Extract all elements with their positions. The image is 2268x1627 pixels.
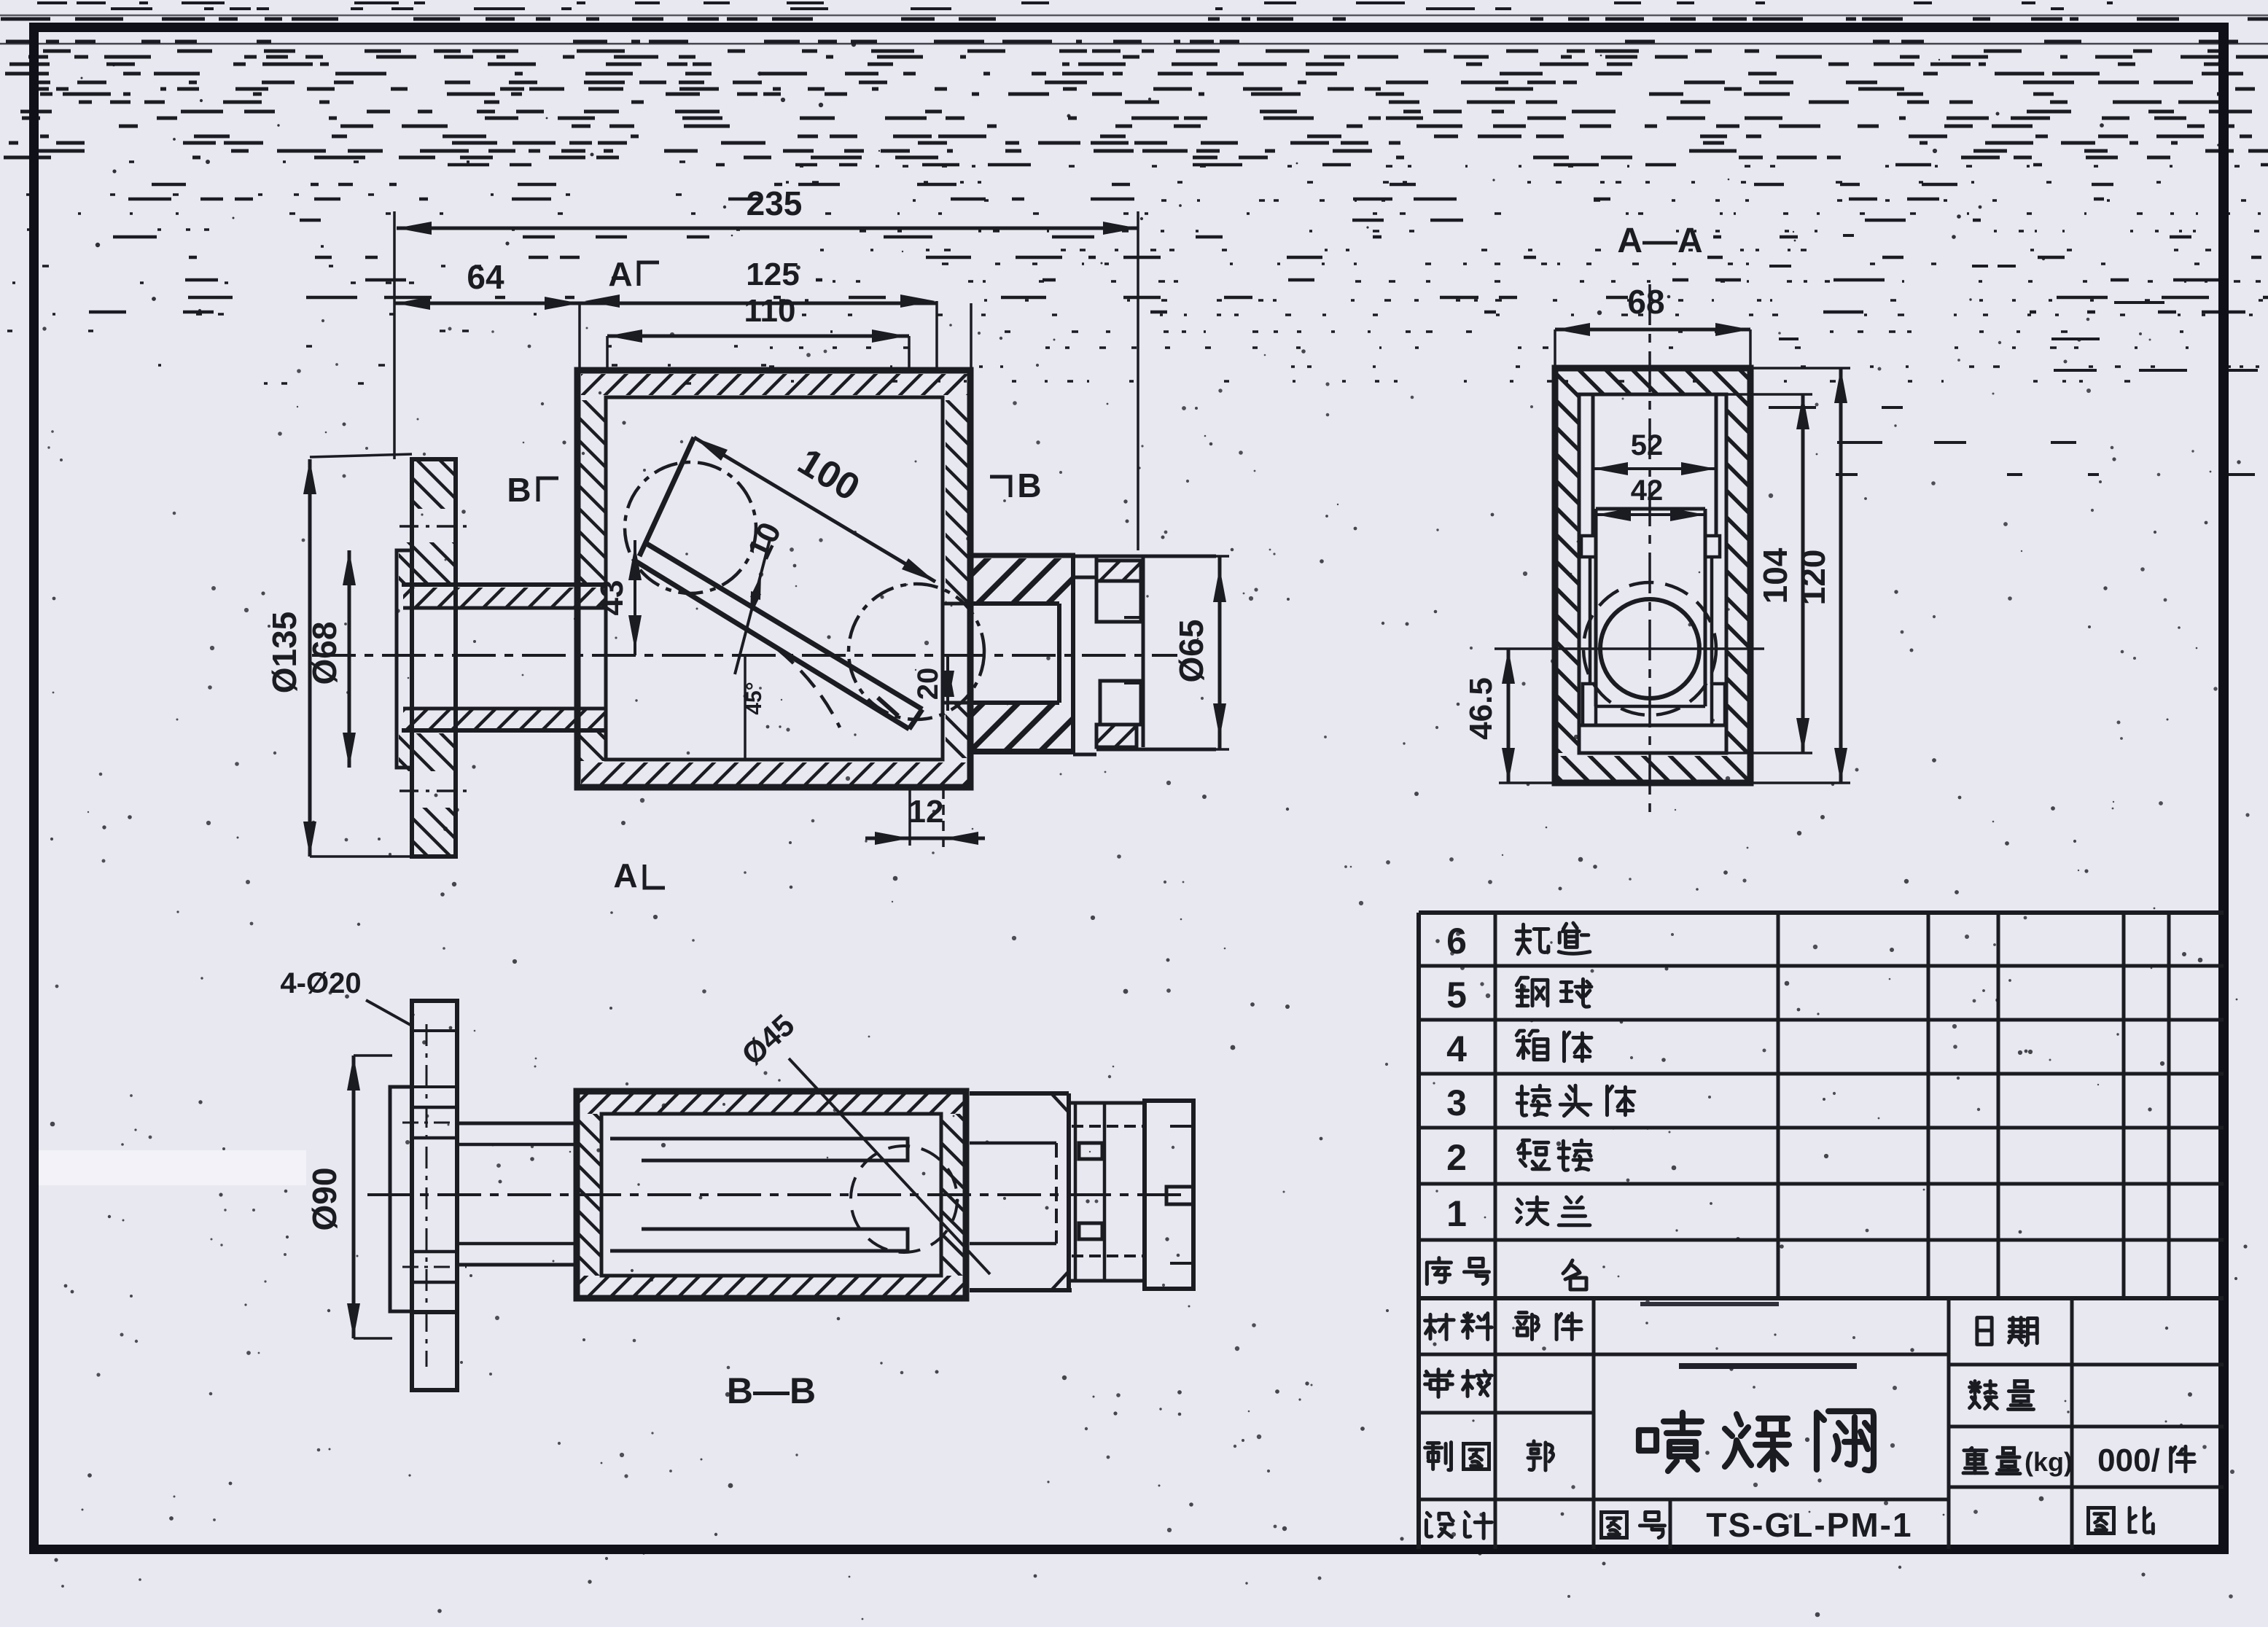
svg-text:110: 110 [744, 293, 796, 329]
svg-text:104: 104 [1756, 547, 1794, 604]
svg-text:A—A: A—A [1617, 222, 1702, 260]
svg-text:235: 235 [747, 184, 803, 222]
svg-text:100: 100 [791, 440, 867, 509]
svg-text:1: 1 [1446, 1193, 1467, 1234]
svg-text:6: 6 [1446, 921, 1467, 961]
svg-text:Ø90: Ø90 [305, 1168, 343, 1231]
svg-text:2: 2 [1446, 1137, 1467, 1178]
svg-text:12: 12 [908, 794, 944, 830]
svg-text:64: 64 [467, 258, 504, 296]
svg-text:4: 4 [1446, 1029, 1467, 1069]
svg-text:B: B [507, 471, 531, 509]
svg-text:4-Ø20: 4-Ø20 [280, 967, 361, 999]
svg-text:3: 3 [1446, 1082, 1467, 1123]
svg-text:A: A [613, 857, 637, 894]
svg-text:52: 52 [1631, 429, 1664, 461]
svg-text:TS-GL-PM-1: TS-GL-PM-1 [1706, 1506, 1912, 1544]
svg-text:43: 43 [594, 580, 630, 616]
svg-text:Ø135: Ø135 [265, 612, 303, 694]
svg-text:5: 5 [1446, 975, 1467, 1015]
svg-text:B—B: B—B [727, 1370, 816, 1411]
svg-text:46.5: 46.5 [1463, 677, 1499, 740]
svg-text:120: 120 [1794, 550, 1832, 606]
svg-text:000/: 000/ [2097, 1443, 2160, 1478]
svg-text:68: 68 [1627, 283, 1664, 321]
svg-text:10: 10 [741, 517, 788, 564]
svg-text:Ø65: Ø65 [1172, 620, 1210, 683]
svg-text:A: A [608, 255, 632, 293]
svg-text:B: B [1017, 467, 1041, 504]
svg-text:125: 125 [746, 257, 799, 292]
svg-text:42: 42 [1631, 475, 1664, 507]
svg-text:(kg): (kg) [2025, 1447, 2073, 1477]
svg-text:20: 20 [912, 668, 944, 701]
svg-text:Ø68: Ø68 [305, 622, 343, 685]
svg-text:45°: 45° [742, 682, 766, 714]
